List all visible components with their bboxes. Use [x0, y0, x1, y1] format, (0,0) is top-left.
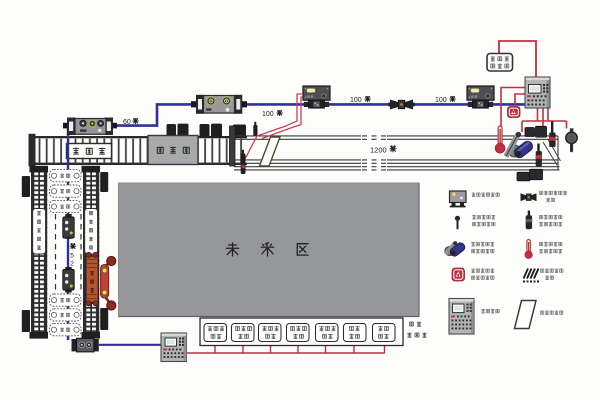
svg-text:5: 5 — [70, 253, 74, 260]
svg-text:2: 2 — [70, 261, 74, 268]
svg-text:100: 100 — [262, 111, 274, 118]
svg-text:1200: 1200 — [370, 146, 387, 155]
svg-text:60: 60 — [123, 119, 131, 126]
svg-text:100: 100 — [350, 97, 362, 104]
svg-text:100: 100 — [435, 97, 447, 104]
